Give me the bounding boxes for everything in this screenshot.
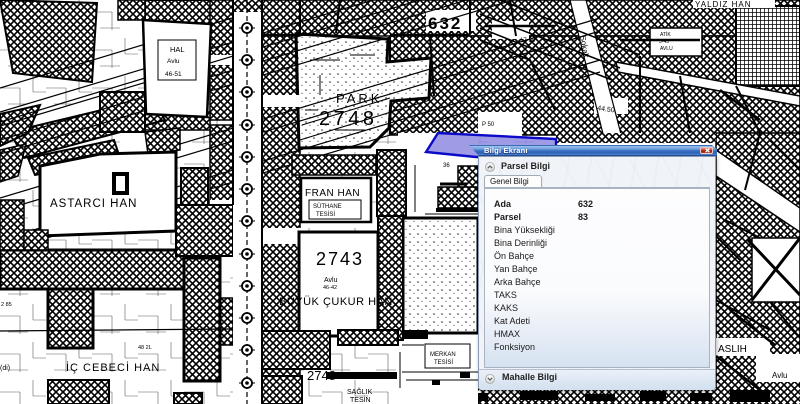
svg-text:17-50: 17-50 <box>520 38 536 44</box>
svg-text:48 2L: 48 2L <box>138 345 152 351</box>
svg-text:2 85: 2 85 <box>1 302 12 308</box>
svg-text:Avlu: Avlu <box>772 371 787 380</box>
svg-text:TESİSİ: TESİSİ <box>316 211 335 218</box>
svg-text:36: 36 <box>443 163 450 169</box>
svg-text:46-51: 46-51 <box>165 71 182 78</box>
svg-text:Avlu: Avlu <box>324 277 338 284</box>
svg-text:FRAN HAN: FRAN HAN <box>305 188 360 199</box>
svg-text:ATİK: ATİK <box>660 31 671 38</box>
svg-text:YALDIZ HAN: YALDIZ HAN <box>695 0 752 9</box>
svg-text:TESİN: TESİN <box>350 395 371 404</box>
svg-text:PARK: PARK <box>336 91 382 106</box>
svg-text:İÇ CEBECİ HAN: İÇ CEBECİ HAN <box>66 361 160 374</box>
svg-text:AVLU: AVLU <box>660 46 673 52</box>
svg-text:2748: 2748 <box>319 108 378 130</box>
svg-text:(di): (di) <box>0 365 10 372</box>
svg-text:ASLIH: ASLIH <box>718 344 747 355</box>
svg-text:ASTARCI HAN: ASTARCI HAN <box>50 198 137 210</box>
svg-text:P 50: P 50 <box>482 122 495 128</box>
svg-text:TESİSİ: TESİSİ <box>434 359 453 366</box>
svg-text:46-42: 46-42 <box>323 285 337 291</box>
svg-text:SÜTHANE: SÜTHANE <box>313 203 342 210</box>
svg-text:2748: 2748 <box>307 368 336 383</box>
svg-text:SAĞLIK: SAĞLIK <box>347 387 373 396</box>
svg-text:BÜYÜK ÇUKUR HAN: BÜYÜK ÇUKUR HAN <box>279 296 393 308</box>
svg-text:MERKAN: MERKAN <box>430 352 456 358</box>
svg-text:632: 632 <box>428 14 462 33</box>
svg-text:2743: 2743 <box>316 249 364 269</box>
svg-text:Avlu: Avlu <box>167 58 180 65</box>
svg-text:HAL: HAL <box>170 45 185 54</box>
